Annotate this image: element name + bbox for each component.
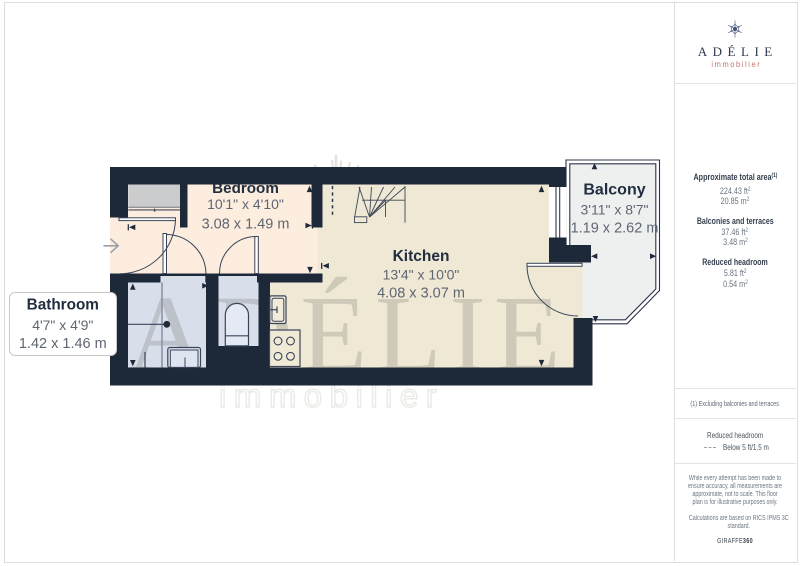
svg-text:4'7" x 4'9": 4'7" x 4'9" xyxy=(32,317,93,333)
svg-text:Bathroom: Bathroom xyxy=(27,297,99,314)
svg-text:1.42 x 1.46 m: 1.42 x 1.46 m xyxy=(19,336,107,352)
